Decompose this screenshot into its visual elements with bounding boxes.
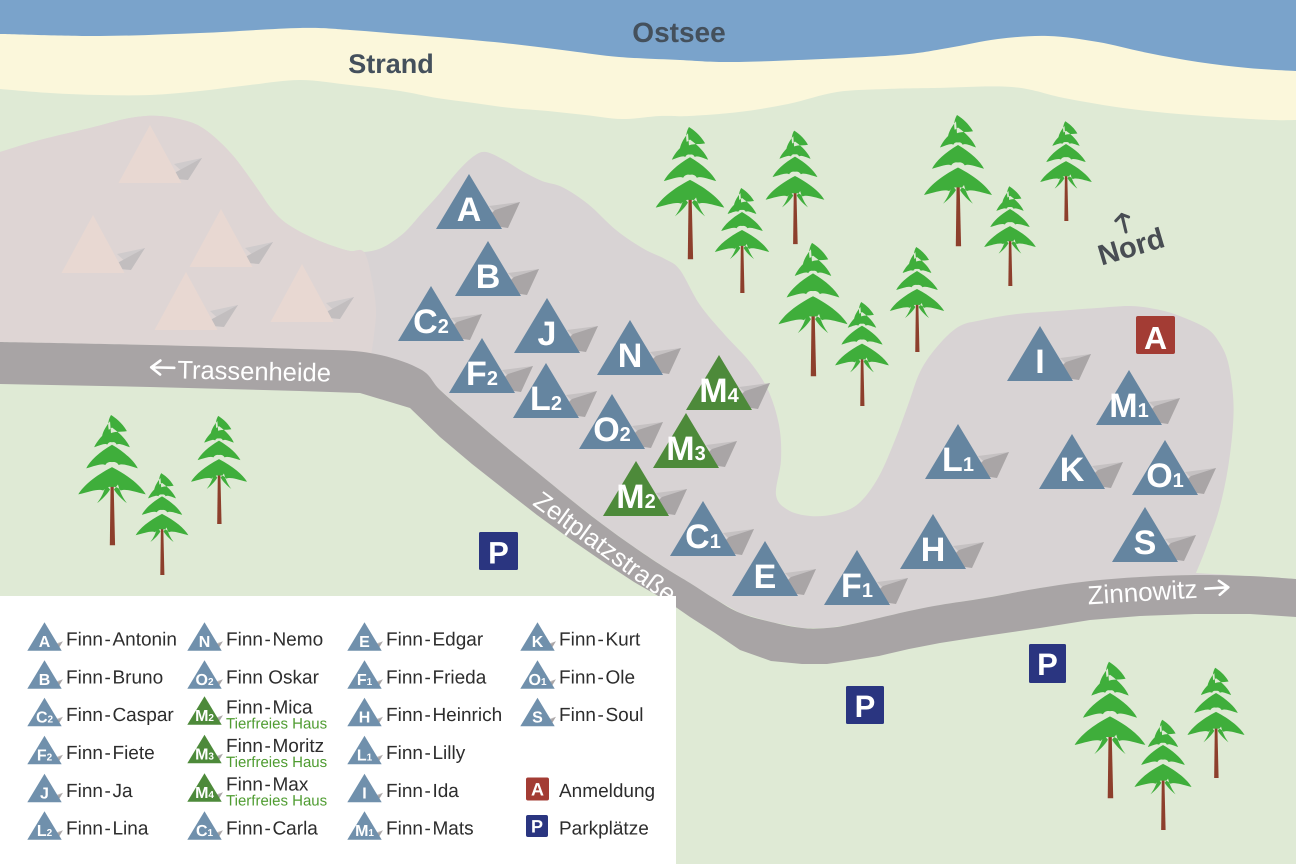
svg-text:Finn - Ole: Finn - Ole	[559, 668, 635, 689]
svg-text:Tierfreies Haus: Tierfreies Haus	[226, 793, 327, 810]
svg-text:Finn - Ida: Finn - Ida	[386, 781, 459, 802]
svg-text:Finn - Lina: Finn - Lina	[66, 819, 149, 840]
svg-text:Trassenheide: Trassenheide	[177, 356, 331, 387]
svg-text:Ostsee: Ostsee	[632, 17, 725, 48]
svg-text:Finn - Soul: Finn - Soul	[559, 705, 644, 726]
svg-text:Finn - Lilly: Finn - Lilly	[386, 743, 466, 764]
svg-text:Finn - Nemo: Finn - Nemo	[226, 630, 323, 651]
svg-text:A: A	[39, 634, 51, 651]
svg-text:N: N	[618, 337, 643, 375]
svg-text:P: P	[488, 536, 509, 571]
svg-text:A: A	[531, 780, 544, 800]
svg-text:K: K	[1060, 451, 1085, 489]
svg-text:H: H	[359, 709, 371, 726]
svg-text:E: E	[359, 634, 370, 651]
svg-text:I: I	[1035, 343, 1044, 381]
svg-text:S: S	[532, 709, 543, 726]
svg-text:Finn - Ja: Finn - Ja	[66, 781, 133, 802]
svg-text:Finn - Edgar: Finn - Edgar	[386, 630, 484, 651]
svg-text:K: K	[532, 634, 544, 651]
svg-text:I: I	[362, 785, 366, 802]
svg-text:Strand: Strand	[348, 49, 434, 79]
svg-text:Finn - Heinrich: Finn - Heinrich	[386, 705, 502, 726]
svg-text:N: N	[199, 634, 211, 651]
svg-text:Finn - Antonin: Finn - Antonin	[66, 630, 177, 651]
svg-text:Parkplätze: Parkplätze	[559, 819, 649, 840]
svg-text:Finn - Carla: Finn - Carla	[226, 819, 318, 840]
svg-text:Finn - Kurt: Finn - Kurt	[559, 630, 641, 651]
svg-text:Finn - Bruno: Finn - Bruno	[66, 668, 163, 689]
svg-text:S: S	[1134, 524, 1157, 562]
svg-text:H: H	[921, 531, 946, 569]
svg-text:Finn - Frieda: Finn - Frieda	[386, 668, 487, 689]
svg-text:J: J	[40, 785, 49, 802]
svg-text:P: P	[855, 689, 876, 724]
svg-text:B: B	[476, 258, 501, 296]
svg-text:Finn - Fiete: Finn - Fiete	[66, 743, 155, 764]
svg-text:A: A	[457, 191, 482, 229]
svg-text:Finn - Mats: Finn - Mats	[386, 819, 474, 840]
svg-text:B: B	[39, 672, 51, 689]
svg-text:P: P	[531, 817, 543, 837]
svg-text:E: E	[754, 558, 777, 596]
svg-text:Finn - Caspar: Finn - Caspar	[66, 705, 174, 726]
svg-text:P: P	[1037, 647, 1058, 682]
svg-text:Tierfreies Haus: Tierfreies Haus	[226, 754, 327, 771]
svg-text:Tierfreies Haus: Tierfreies Haus	[226, 716, 327, 733]
svg-text:Finn Oskar: Finn Oskar	[226, 668, 320, 689]
svg-text:J: J	[538, 315, 557, 353]
svg-text:A: A	[1144, 320, 1167, 356]
svg-text:Anmeldung: Anmeldung	[559, 781, 655, 802]
